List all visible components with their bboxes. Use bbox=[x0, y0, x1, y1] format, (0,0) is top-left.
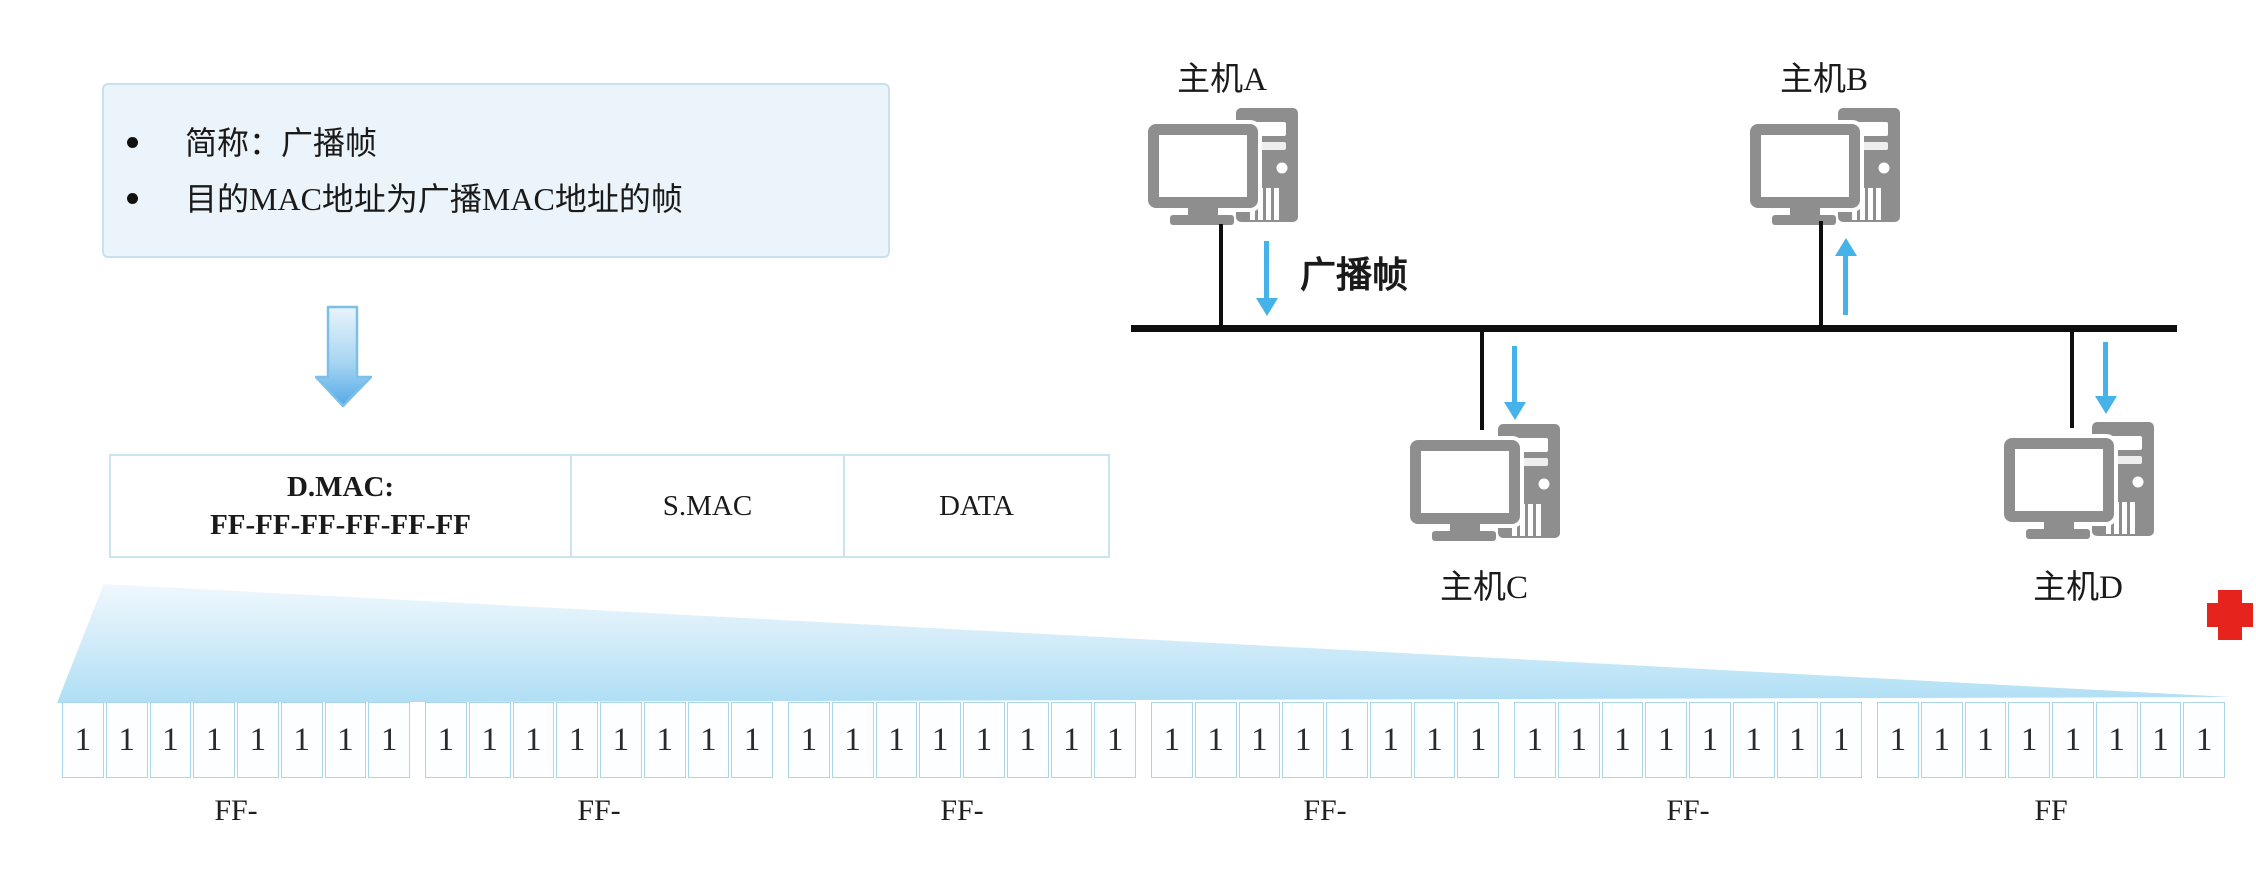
smac-label: S.MAC bbox=[663, 487, 752, 525]
host-b-label: 主机B bbox=[1748, 52, 1900, 100]
bit-cell: 1 bbox=[150, 702, 192, 778]
bit-cell: 1 bbox=[1733, 702, 1775, 778]
bit-cell: 1 bbox=[1877, 702, 1919, 778]
bit-group: 11111111 bbox=[425, 702, 773, 778]
bit-cell: 1 bbox=[1007, 702, 1049, 778]
link-host-d bbox=[2070, 332, 2074, 428]
expansion-beam bbox=[57, 584, 2231, 703]
bit-group-label: FF- bbox=[425, 794, 773, 828]
bit-cell: 1 bbox=[832, 702, 874, 778]
bit-cell: 1 bbox=[1282, 702, 1324, 778]
bit-cell: 1 bbox=[1457, 702, 1499, 778]
bullet-text: 目的MAC地址为广播MAC地址的帧 bbox=[185, 179, 683, 219]
bit-cell: 1 bbox=[731, 702, 773, 778]
bit-cell: 1 bbox=[1689, 702, 1731, 778]
broadcast-frame-slide: 简称：广播帧 目的MAC地址为广播MAC地址的帧 D.M bbox=[0, 0, 2256, 885]
bit-cell: 1 bbox=[2140, 702, 2182, 778]
bit-cell: 1 bbox=[1514, 702, 1556, 778]
bit-cell: 1 bbox=[963, 702, 1005, 778]
bit-cell: 1 bbox=[1921, 702, 1963, 778]
bullet-icon bbox=[127, 193, 138, 204]
bullet-item: 目的MAC地址为广播MAC地址的帧 bbox=[104, 179, 888, 219]
bit-cell: 1 bbox=[62, 702, 104, 778]
bit-group: 11111111 bbox=[788, 702, 1136, 778]
bit-cell: 1 bbox=[1645, 702, 1687, 778]
bit-cell: 1 bbox=[2008, 702, 2050, 778]
bit-cell: 1 bbox=[1326, 702, 1368, 778]
bit-cell: 1 bbox=[1094, 702, 1136, 778]
bit-label-row: FF-FF-FF-FF-FF-FF bbox=[62, 794, 2225, 828]
bit-cell: 1 bbox=[1558, 702, 1600, 778]
bit-group-label: FF bbox=[1877, 794, 2225, 828]
flow-arrow-to-c-icon bbox=[1512, 346, 1517, 402]
bit-cell: 1 bbox=[788, 702, 830, 778]
computer-icon-host-b bbox=[1748, 108, 1900, 226]
bit-group: 11111111 bbox=[62, 702, 410, 778]
bit-cell: 1 bbox=[2096, 702, 2138, 778]
data-label: DATA bbox=[939, 487, 1014, 525]
bit-group-label: FF- bbox=[1514, 794, 1862, 828]
link-host-c bbox=[1480, 332, 1484, 430]
link-host-a bbox=[1219, 224, 1223, 325]
bit-group-label: FF- bbox=[62, 794, 410, 828]
broadcast-frame-label: 广播帧 bbox=[1300, 246, 1408, 298]
flow-arrow-from-a-icon bbox=[1264, 241, 1269, 298]
bit-cell: 1 bbox=[513, 702, 555, 778]
bit-cell: 1 bbox=[919, 702, 961, 778]
host-a-label: 主机A bbox=[1146, 52, 1298, 100]
dmac-label: D.MAC: bbox=[287, 468, 394, 506]
bit-cell: 1 bbox=[1965, 702, 2007, 778]
frame-structure-table: D.MAC: FF-FF-FF-FF-FF-FF S.MAC DATA bbox=[109, 454, 1110, 558]
bit-cell: 1 bbox=[2052, 702, 2094, 778]
bit-cell: 1 bbox=[1370, 702, 1412, 778]
bit-cell: 1 bbox=[876, 702, 918, 778]
dmac-field: D.MAC: FF-FF-FF-FF-FF-FF bbox=[111, 456, 572, 556]
bit-group: 11111111 bbox=[1877, 702, 2225, 778]
bit-cell: 1 bbox=[556, 702, 598, 778]
definition-box: 简称：广播帧 目的MAC地址为广播MAC地址的帧 bbox=[102, 83, 890, 258]
bit-cell: 1 bbox=[600, 702, 642, 778]
computer-icon-host-d bbox=[2002, 422, 2154, 540]
bullet-icon bbox=[127, 137, 138, 148]
bit-group-label: FF- bbox=[788, 794, 1136, 828]
bit-cell: 1 bbox=[1414, 702, 1456, 778]
bit-cell: 1 bbox=[1051, 702, 1093, 778]
bit-cell: 1 bbox=[469, 702, 511, 778]
flow-arrow-to-b-icon bbox=[1843, 256, 1848, 315]
computer-icon-host-a bbox=[1146, 108, 1298, 226]
bit-cell: 1 bbox=[688, 702, 730, 778]
bullet-text: 简称：广播帧 bbox=[185, 123, 377, 163]
bit-group: 11111111 bbox=[1514, 702, 1862, 778]
bit-cell: 1 bbox=[193, 702, 235, 778]
bit-cell: 1 bbox=[281, 702, 323, 778]
bit-group-label: FF- bbox=[1151, 794, 1499, 828]
bit-row: 1111111111111111111111111111111111111111… bbox=[62, 702, 2225, 778]
bit-group: 11111111 bbox=[1151, 702, 1499, 778]
red-cross-icon bbox=[2207, 590, 2253, 640]
smac-field: S.MAC bbox=[572, 456, 845, 556]
bit-cell: 1 bbox=[368, 702, 410, 778]
computer-icon-host-c bbox=[1408, 424, 1560, 542]
bit-cell: 1 bbox=[1820, 702, 1862, 778]
dmac-value: FF-FF-FF-FF-FF-FF bbox=[210, 506, 471, 544]
bullet-item: 简称：广播帧 bbox=[104, 123, 888, 163]
bit-cell: 1 bbox=[1602, 702, 1644, 778]
bit-cell: 1 bbox=[425, 702, 467, 778]
bit-cell: 1 bbox=[325, 702, 367, 778]
flow-arrow-to-d-icon bbox=[2103, 342, 2108, 396]
data-field: DATA bbox=[845, 456, 1108, 556]
down-arrow-icon bbox=[311, 305, 375, 408]
bit-cell: 1 bbox=[106, 702, 148, 778]
bit-cell: 1 bbox=[1777, 702, 1819, 778]
host-c-label: 主机C bbox=[1408, 560, 1560, 608]
host-d-label: 主机D bbox=[2002, 560, 2154, 608]
bit-cell: 1 bbox=[644, 702, 686, 778]
bit-cell: 1 bbox=[1195, 702, 1237, 778]
bit-cell: 1 bbox=[1151, 702, 1193, 778]
ethernet-bus bbox=[1131, 325, 2177, 332]
link-host-b bbox=[1819, 221, 1823, 325]
bit-cell: 1 bbox=[1239, 702, 1281, 778]
bit-cell: 1 bbox=[237, 702, 279, 778]
bit-cell: 1 bbox=[2183, 702, 2225, 778]
